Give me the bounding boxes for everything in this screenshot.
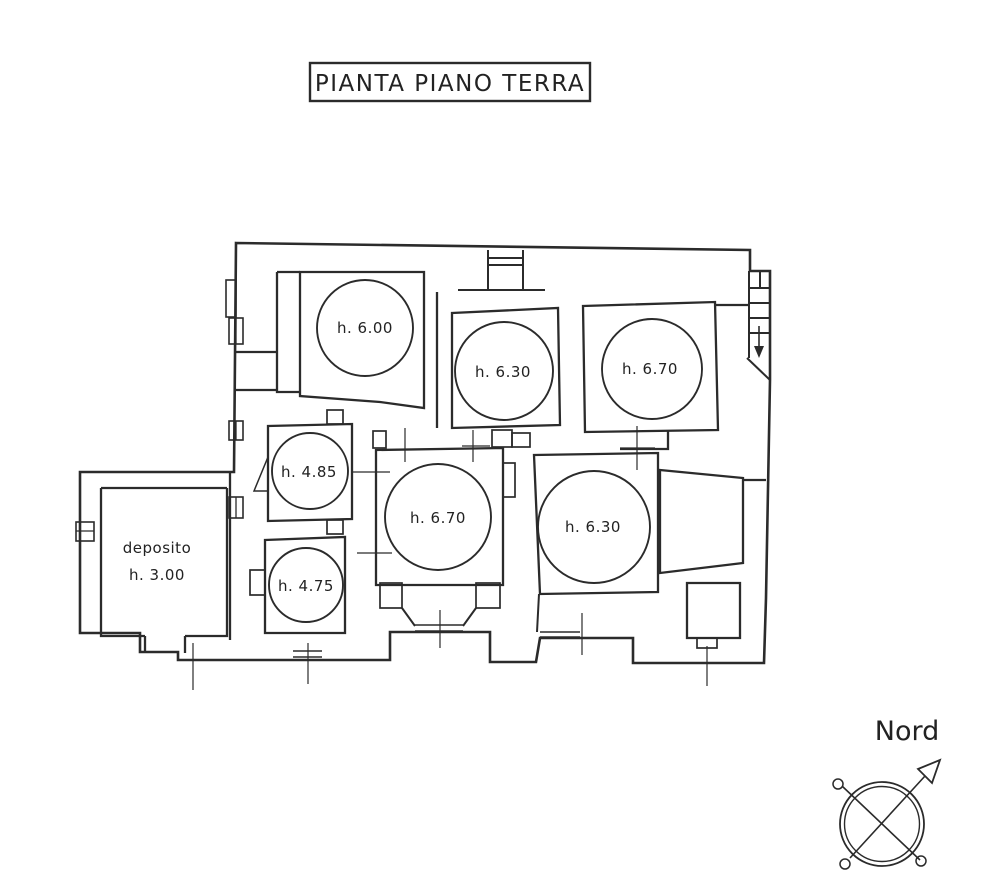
plan-title-box: PIANTA PIANO TERRA (310, 63, 590, 101)
room-height-label: h. 6.00 (337, 319, 393, 337)
room-height-label: h. 6.30 (565, 518, 621, 536)
plan-title: PIANTA PIANO TERRA (315, 71, 585, 97)
scanned-floor-plan-page: PIANTA PIANO TERRA (0, 0, 1000, 895)
room-height-label: h. 6.70 (622, 360, 678, 378)
wall-bump (512, 433, 530, 447)
wall-bump (250, 570, 265, 595)
north-compass: Nord (833, 716, 940, 869)
wall-bump (503, 463, 515, 497)
compass-end-knob (840, 859, 850, 869)
compass-cross-lines (842, 776, 925, 860)
wall-bump (327, 520, 343, 534)
wall-bump (373, 431, 386, 448)
staircase (747, 271, 770, 380)
room-height-label: h. 6.30 (475, 363, 531, 381)
wall-bump (476, 583, 500, 608)
compass-north-label: Nord (875, 716, 939, 747)
deposito-height-label: h. 3.00 (129, 566, 185, 584)
deposito-name-label: deposito (123, 539, 192, 557)
compass-end-knob (833, 779, 843, 789)
door-swing-mark (254, 457, 268, 491)
compass-end-knob (916, 856, 926, 866)
stair-down-arrow-icon (754, 346, 764, 358)
floor-plan-canvas: PIANTA PIANO TERRA (0, 0, 1000, 895)
wall-bump (380, 583, 402, 608)
interior-walls (101, 250, 766, 653)
wall-bump (327, 410, 343, 424)
room-height-label: h. 4.75 (278, 577, 334, 595)
room-height-label: h. 6.70 (410, 509, 466, 527)
room-height-label: h. 4.85 (281, 463, 337, 481)
wall-bump (492, 430, 512, 447)
